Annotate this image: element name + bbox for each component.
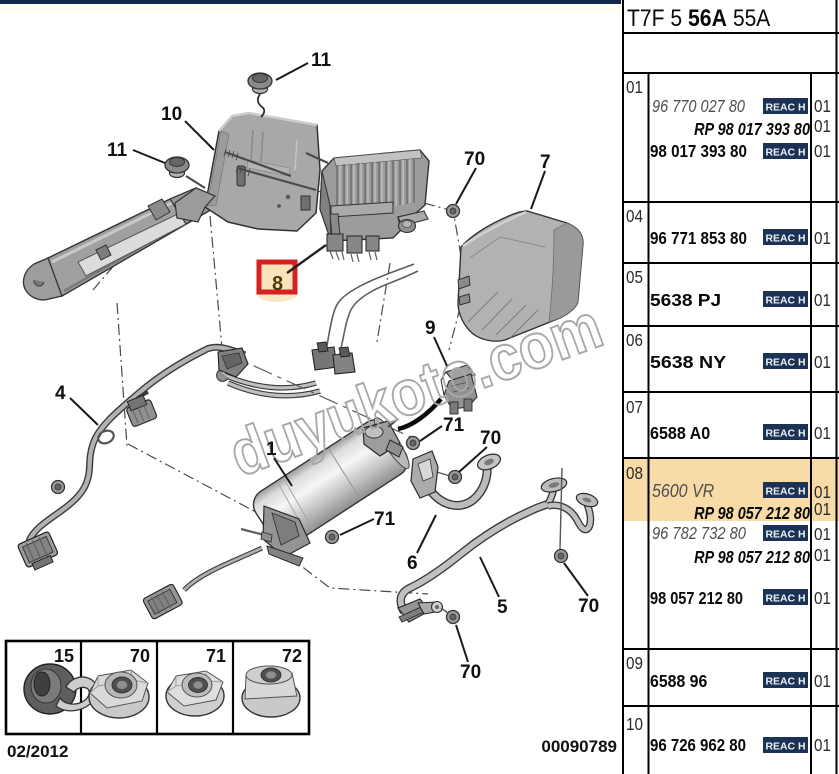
- svg-text:5: 5: [497, 597, 508, 618]
- svg-text:01: 01: [814, 97, 831, 116]
- svg-text:8: 8: [272, 273, 283, 295]
- svg-text:01: 01: [814, 229, 831, 248]
- svg-text:70: 70: [578, 596, 599, 617]
- svg-text:6588 96: 6588 96: [650, 671, 707, 691]
- svg-text:01: 01: [814, 736, 831, 755]
- svg-text:RP 98 057 212 80: RP 98 057 212 80: [694, 504, 810, 524]
- svg-text:56A: 56A: [688, 4, 727, 32]
- svg-text:01: 01: [814, 546, 831, 565]
- svg-text:01: 01: [814, 291, 831, 310]
- svg-text:01: 01: [814, 525, 831, 544]
- svg-text:01: 01: [626, 78, 643, 97]
- svg-text:RP 98 057 212 80: RP 98 057 212 80: [694, 548, 810, 568]
- svg-text:01: 01: [814, 672, 831, 691]
- svg-text:07: 07: [626, 398, 643, 417]
- svg-text:7: 7: [540, 152, 551, 173]
- svg-text:96 771 853 80: 96 771 853 80: [650, 228, 747, 249]
- svg-text:10: 10: [626, 715, 643, 734]
- svg-text:06: 06: [626, 331, 643, 350]
- svg-text:96 726 962 80: 96 726 962 80: [650, 735, 746, 756]
- svg-text:02/2012: 02/2012: [7, 742, 68, 761]
- svg-text:01: 01: [814, 353, 831, 372]
- svg-text:11: 11: [311, 50, 332, 71]
- svg-text:09: 09: [626, 654, 643, 673]
- svg-text:98 057 212 80: 98 057 212 80: [650, 589, 743, 609]
- svg-text:5638 NY: 5638 NY: [650, 352, 727, 372]
- svg-text:5600 VR: 5600 VR: [652, 481, 714, 501]
- svg-text:6588 A0: 6588 A0: [650, 423, 710, 443]
- svg-text:01: 01: [814, 589, 831, 608]
- svg-text:96 782 732 80: 96 782 732 80: [652, 524, 746, 544]
- svg-text:9: 9: [425, 318, 436, 339]
- svg-text:70: 70: [130, 646, 150, 666]
- svg-text:72: 72: [282, 646, 302, 666]
- svg-text:08: 08: [626, 464, 643, 483]
- svg-text:55A: 55A: [733, 5, 770, 32]
- svg-text:05: 05: [626, 268, 643, 287]
- svg-text:1: 1: [266, 439, 277, 460]
- svg-text:01: 01: [814, 117, 831, 136]
- svg-text:11: 11: [107, 140, 128, 161]
- svg-text:5638 PJ: 5638 PJ: [650, 290, 721, 310]
- svg-text:71: 71: [206, 646, 226, 666]
- svg-text:71: 71: [374, 509, 396, 530]
- svg-text:96 770 027 80: 96 770 027 80: [652, 97, 745, 117]
- svg-text:4: 4: [55, 383, 66, 404]
- svg-text:01: 01: [814, 500, 831, 519]
- svg-text:04: 04: [626, 207, 643, 226]
- svg-text:01: 01: [814, 424, 831, 443]
- svg-text:15: 15: [54, 646, 74, 666]
- svg-text:71: 71: [443, 415, 465, 436]
- svg-text:98 017 393 80: 98 017 393 80: [650, 141, 747, 162]
- svg-text:RP 98 017 393 80: RP 98 017 393 80: [694, 120, 810, 140]
- svg-text:70: 70: [464, 149, 485, 170]
- svg-text:6: 6: [407, 553, 418, 574]
- svg-text:00090789: 00090789: [541, 737, 617, 756]
- svg-text:70: 70: [460, 662, 481, 683]
- svg-text:T7F 5: T7F 5: [627, 5, 682, 32]
- svg-text:01: 01: [814, 142, 831, 161]
- svg-text:70: 70: [480, 428, 501, 449]
- svg-text:10: 10: [161, 104, 182, 125]
